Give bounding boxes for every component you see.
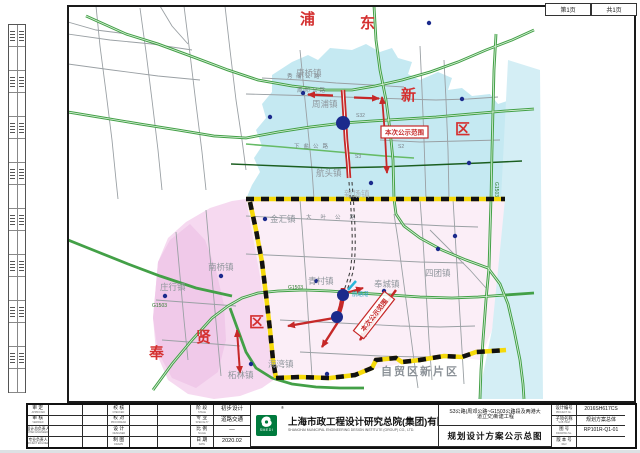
smedi-logo-text: SMEDI bbox=[260, 429, 274, 433]
value-revision bbox=[577, 437, 625, 448]
page-number: 第1页 bbox=[560, 5, 575, 14]
title-block: 审 定APPROVED 校 核CHECKED 阶 段STAGE 初步设计 SME… bbox=[26, 403, 637, 449]
value-specialty: 道路交通 bbox=[214, 416, 251, 427]
label-sheji: 设 计DESIGNED bbox=[108, 426, 130, 437]
drawing-title: 规划设计方案公示总图 bbox=[447, 432, 542, 441]
signature-cell bbox=[49, 405, 83, 416]
project-name-line2: 道立交)新建工程 bbox=[477, 415, 514, 420]
signature-cell bbox=[49, 437, 83, 448]
page-number-cell: 第1页 bbox=[545, 3, 591, 16]
signature-cell bbox=[158, 416, 191, 427]
label-subitem: 子项名称SUB ITEM bbox=[552, 416, 577, 427]
drawing-title-cell: 规划设计方案公示总图 bbox=[439, 426, 552, 447]
label-scale: 比 例SCALE bbox=[191, 426, 214, 437]
project-name-cell: S3公路(周邓公路~G1503公路段及两港大 道立交)新建工程 bbox=[439, 405, 552, 426]
signature-cell bbox=[158, 405, 191, 416]
label-stage: 阶 段STAGE bbox=[191, 405, 214, 416]
label-jiaodui: 校 对PROOFREAD bbox=[108, 416, 130, 427]
label-design-director: 设计总负责人CHIEF ENGINEER bbox=[28, 426, 49, 437]
signature-cell bbox=[130, 426, 158, 437]
value-drawing-no: RP101R-Q1-01 bbox=[577, 426, 625, 437]
signature-cell bbox=[130, 416, 158, 427]
signature-cell bbox=[83, 405, 108, 416]
label-revision: 版 本 号REV. bbox=[552, 437, 577, 448]
company-name-cn: 上海市政工程设计研究总院(集团)有限公司 bbox=[288, 418, 439, 428]
signature-cell bbox=[83, 426, 108, 437]
signature-cell bbox=[158, 426, 191, 437]
signature-cell bbox=[130, 405, 158, 416]
screenshot-root: { "sheet": { "page_label": "第1页", "total… bbox=[0, 0, 640, 453]
map-frame bbox=[67, 5, 636, 403]
signature-cell bbox=[158, 437, 191, 448]
label-jiaohe: 校 核CHECKED bbox=[108, 405, 130, 416]
company-cell: SMEDI ® 上海市政工程设计研究总院(集团)有限公司 SHANGHAI MU… bbox=[251, 405, 439, 447]
company-name-en: SHANGHAI MUNICIPAL ENGINEERING DESIGN IN… bbox=[288, 429, 439, 432]
value-date: 2020.02 bbox=[214, 437, 251, 448]
signature-cell bbox=[83, 416, 108, 427]
drawing-sheet: 秀浦公路 周邓公路 下盐公路 大叶公路 航塘港 G1503 G1503 G150… bbox=[0, 0, 640, 450]
label-project-no: 设计编号PROJECT No. bbox=[552, 405, 577, 416]
signature-cell bbox=[83, 437, 108, 448]
label-date: 日 期DATE bbox=[191, 437, 214, 448]
signature-cell bbox=[49, 416, 83, 427]
signature-cell bbox=[49, 426, 83, 437]
label-discipline-director: 专业负责人PROJECT ENGINEER bbox=[28, 437, 49, 448]
page-total-cell: 共1页 bbox=[591, 3, 637, 16]
value-subitem: 规划方案总体 bbox=[577, 416, 625, 427]
value-scale: — bbox=[214, 426, 251, 437]
page-total: 共1页 bbox=[606, 5, 621, 14]
label-shenhe: 审 核VERIFIED bbox=[28, 416, 49, 427]
value-project-no: 2016SH617CS bbox=[577, 405, 625, 416]
label-shending: 审 定APPROVED bbox=[28, 405, 49, 416]
value-stage: 初步设计 bbox=[214, 405, 251, 416]
smedi-logo: SMEDI bbox=[256, 415, 277, 436]
label-specialty: 专 业SPECIALTY bbox=[191, 416, 214, 427]
label-zhitu: 制 图DRAWN bbox=[108, 437, 130, 448]
signature-cell bbox=[130, 437, 158, 448]
label-drawing-no: 图 号DRAWING No. bbox=[552, 426, 577, 437]
registered-mark: ® bbox=[281, 406, 284, 410]
